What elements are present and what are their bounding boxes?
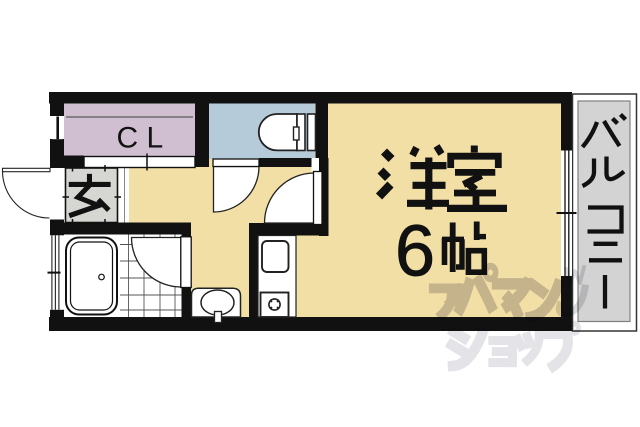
- svg-text:C L: C L: [117, 122, 164, 155]
- svg-text:6: 6: [395, 212, 435, 292]
